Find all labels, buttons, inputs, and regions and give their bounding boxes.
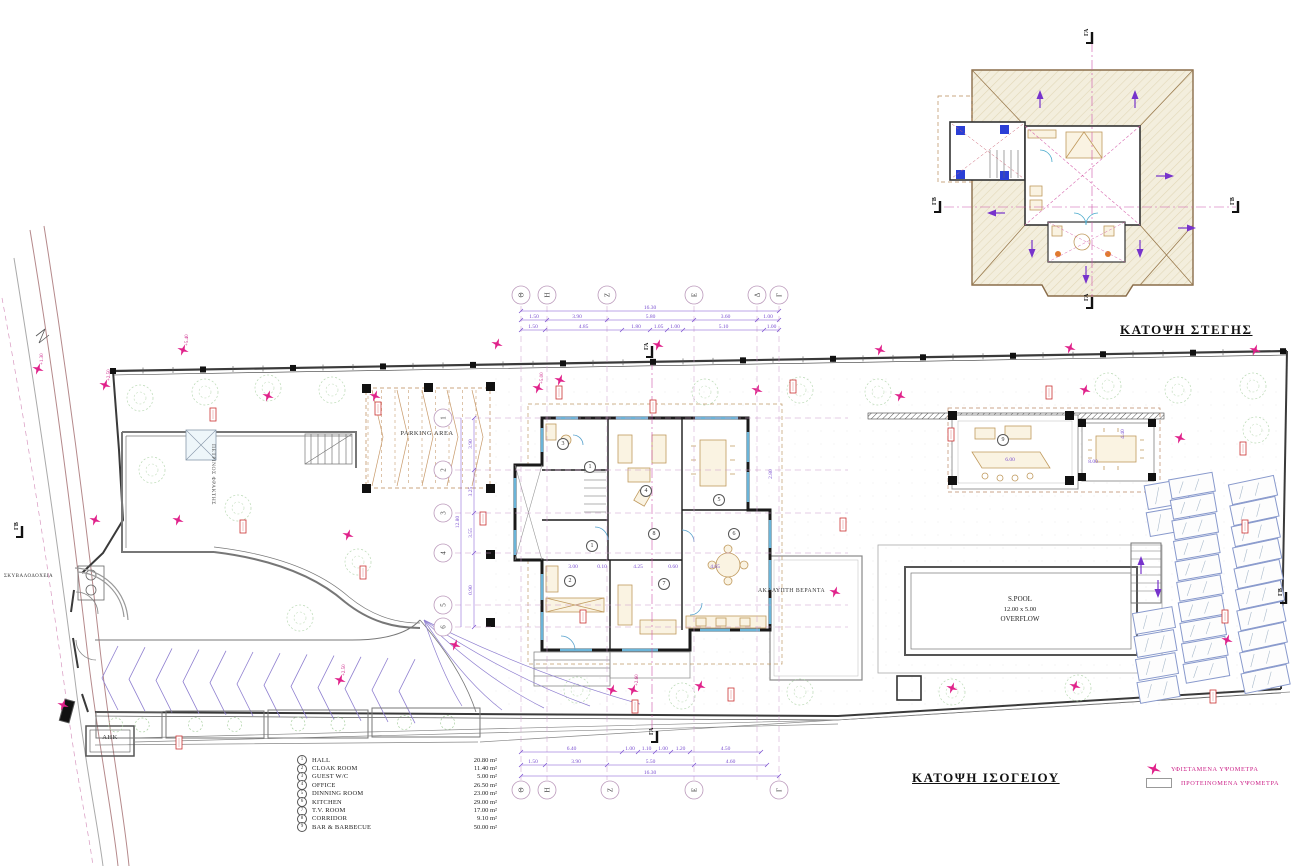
svg-text:6: 6 bbox=[440, 625, 448, 629]
drawing-canvas: +2.50+5.40+5.00+1.30+2.50+2.60ΘΗΖΕΔΓΘΗΖΕ… bbox=[0, 0, 1300, 866]
parking-area bbox=[366, 388, 490, 488]
svg-text:1.80: 1.80 bbox=[631, 324, 641, 330]
svg-text:+2.50: +2.50 bbox=[342, 664, 347, 676]
svg-text:4.60: 4.60 bbox=[726, 759, 736, 765]
room-name: HALL bbox=[312, 757, 449, 764]
garage-building bbox=[122, 430, 420, 628]
svg-text:12.80: 12.80 bbox=[455, 516, 461, 529]
svg-text:6.00: 6.00 bbox=[1005, 457, 1015, 463]
svg-text:Η: Η bbox=[544, 787, 552, 792]
room-name: OFFICE bbox=[312, 782, 449, 789]
svg-text:Ζ: Ζ bbox=[607, 788, 615, 792]
svg-text:1.00: 1.00 bbox=[625, 746, 635, 752]
room-name: GUEST W/C bbox=[312, 773, 449, 780]
svg-text:Ζ: Ζ bbox=[604, 293, 612, 297]
svg-text:3.90: 3.90 bbox=[468, 439, 474, 449]
road-left bbox=[2, 226, 129, 866]
svg-text:0.60: 0.60 bbox=[668, 564, 678, 570]
svg-text:+5.40: +5.40 bbox=[185, 334, 190, 346]
legend-proposed-label: ΠΡΟΤΕΙΝΟΜΕΝΑ ΥΨΟΜΕΤΡΑ bbox=[1181, 780, 1279, 787]
svg-text:8.00: 8.00 bbox=[1088, 459, 1098, 465]
ahk-label: ΑΗΚ bbox=[88, 734, 132, 741]
room-number-badge: 9 bbox=[297, 822, 307, 832]
room-name: KITCHEN bbox=[312, 799, 449, 806]
svg-text:4.50: 4.50 bbox=[721, 746, 731, 752]
svg-text:Γ: Γ bbox=[776, 293, 784, 297]
svg-text:Θ: Θ bbox=[518, 292, 526, 297]
roof-plan-title: ΚΑΤΟΨΗ ΣΤΕΓΗΣ bbox=[1120, 322, 1253, 338]
room-name: BAR & BARBECUE bbox=[312, 824, 449, 831]
schedule-row: 8CORRIDOR9.10 m² bbox=[297, 815, 497, 823]
svg-text:+1.30: +1.30 bbox=[40, 353, 45, 365]
svg-text:1.50: 1.50 bbox=[528, 324, 538, 330]
room-area: 17.00 m² bbox=[449, 807, 497, 814]
svg-text:2: 2 bbox=[440, 468, 448, 472]
driveway-edges bbox=[95, 620, 476, 712]
svg-text:ΓΑ: ΓΑ bbox=[1084, 28, 1090, 36]
svg-text:4.85: 4.85 bbox=[579, 324, 589, 330]
room-number-badge: 2 bbox=[564, 575, 576, 587]
gate-post bbox=[59, 699, 74, 723]
svg-text:16.30: 16.30 bbox=[644, 305, 657, 311]
svg-text:1.00: 1.00 bbox=[763, 314, 773, 320]
ground-plan-title: ΚΑΤΟΨΗ ΙΣΟΓΕΙΟΥ bbox=[912, 770, 1060, 786]
svg-text:Γ: Γ bbox=[776, 788, 784, 792]
svg-text:1: 1 bbox=[440, 416, 448, 420]
svg-text:+5.00: +5.00 bbox=[540, 372, 545, 384]
room-name: CORRIDOR bbox=[312, 815, 449, 822]
room-schedule-legend: 1HALL20.80 m²2CLOAK ROOM11.40 m²3GUEST W… bbox=[297, 756, 497, 832]
room-number-badge: 4 bbox=[640, 485, 652, 497]
svg-text:3.25: 3.25 bbox=[468, 486, 474, 496]
garden-stair bbox=[305, 434, 352, 464]
section-marker: ΓΒ bbox=[14, 522, 23, 538]
room-number-badge: 1 bbox=[584, 461, 596, 473]
svg-text:3: 3 bbox=[440, 511, 448, 515]
svg-text:Ε: Ε bbox=[691, 788, 699, 792]
svg-text:16.30: 16.30 bbox=[644, 770, 657, 776]
svg-text:1.50: 1.50 bbox=[529, 314, 539, 320]
svg-text:2.80: 2.80 bbox=[768, 469, 774, 479]
schedule-row: 3GUEST W/C5.00 m² bbox=[297, 773, 497, 781]
elevation-star-icon bbox=[1146, 762, 1162, 776]
svg-text:3.60: 3.60 bbox=[721, 314, 731, 320]
room-area: 20.80 m² bbox=[449, 757, 497, 764]
room-area: 5.00 m² bbox=[449, 773, 497, 780]
legend-proposed-row: ΠΡΟΤΕΙΝΟΜΕΝΑ ΥΨΟΜΕΤΡΑ bbox=[1146, 776, 1279, 790]
section-marker: ΓΑ bbox=[1084, 28, 1093, 44]
svg-text:4: 4 bbox=[440, 551, 448, 555]
svg-text:+2.60: +2.60 bbox=[635, 674, 640, 686]
room-number-badge: 5 bbox=[713, 494, 725, 506]
room-number-badge: 9 bbox=[997, 434, 1009, 446]
svg-text:Η: Η bbox=[544, 292, 552, 297]
roof-plan bbox=[938, 42, 1236, 300]
room-number-badge: 3 bbox=[557, 438, 569, 450]
svg-text:1.05: 1.05 bbox=[654, 324, 664, 330]
svg-text:ΓΑ: ΓΑ bbox=[649, 727, 655, 735]
svg-text:1.00: 1.00 bbox=[658, 746, 668, 752]
room-area: 50.00 m² bbox=[449, 824, 497, 831]
schedule-row: 9BAR & BARBECUE50.00 m² bbox=[297, 823, 497, 831]
stone-fence-label: ΠΕΤΡΙΝΟΣ ΦΡΑΚΤΗΣ bbox=[210, 444, 216, 505]
svg-text:3.55: 3.55 bbox=[468, 528, 474, 538]
svg-text:5.50: 5.50 bbox=[646, 759, 656, 765]
pool-type: OVERFLOW bbox=[950, 614, 1090, 625]
svg-text:4.25: 4.25 bbox=[633, 564, 643, 570]
svg-text:1.50: 1.50 bbox=[528, 759, 538, 765]
svg-text:5: 5 bbox=[440, 603, 448, 607]
pool-size: 12.00 x 5.00 bbox=[950, 605, 1090, 615]
svg-text:ΓΑ: ΓΑ bbox=[1084, 293, 1090, 301]
svg-text:1.20: 1.20 bbox=[676, 746, 686, 752]
legend-existing-row: ΥΦΙΣΤΑΜΕΝΑ ΥΨΟΜΕΤΡΑ bbox=[1146, 762, 1279, 776]
svg-text:Ε: Ε bbox=[691, 293, 699, 297]
svg-text:5.10: 5.10 bbox=[719, 324, 729, 330]
svg-text:5.80: 5.80 bbox=[646, 314, 656, 320]
room-area: 11.40 m² bbox=[449, 765, 497, 772]
legend-existing-label: ΥΦΙΣΤΑΜΕΝΑ ΥΨΟΜΕΤΡΑ bbox=[1171, 766, 1259, 773]
svg-text:1.00: 1.00 bbox=[767, 324, 777, 330]
svg-text:1.00: 1.00 bbox=[670, 324, 680, 330]
svg-text:ΓΑ: ΓΑ bbox=[644, 342, 650, 350]
site-plan-drawing: +2.50+5.40+5.00+1.30+2.50+2.60ΘΗΖΕΔΓΘΗΖΕ… bbox=[0, 0, 1300, 866]
svg-text:Θ: Θ bbox=[518, 787, 526, 792]
room-name: T.V. ROOM bbox=[312, 807, 449, 814]
svg-text:0.90: 0.90 bbox=[468, 585, 474, 595]
schedule-row: 2CLOAK ROOM11.40 m² bbox=[297, 764, 497, 772]
room-number-badge: 1 bbox=[586, 540, 598, 552]
veranda-label: ΑΚΑΛΥΠΤΗ ΒΕΡΑΝΤΑ bbox=[758, 588, 825, 594]
schedule-row: 4OFFICE26.50 m² bbox=[297, 781, 497, 789]
svg-text:0.10: 0.10 bbox=[597, 564, 607, 570]
room-number-badge: 7 bbox=[658, 578, 670, 590]
room-name: DINNING ROOM bbox=[312, 790, 449, 797]
bins-label: ΣΚΥΒΑΛΟΔΟΧΕΙΑ bbox=[4, 574, 53, 579]
pool-label: S.POOL 12.00 x 5.00 OVERFLOW bbox=[950, 594, 1090, 625]
room-area: 26.50 m² bbox=[449, 782, 497, 789]
room-number-badge: 8 bbox=[648, 528, 660, 540]
svg-text:Δ: Δ bbox=[754, 292, 762, 297]
svg-text:6.40: 6.40 bbox=[567, 746, 577, 752]
svg-text:ΓΒ: ΓΒ bbox=[1230, 197, 1236, 205]
room-name: CLOAK ROOM bbox=[312, 765, 449, 772]
pool-name: S.POOL bbox=[950, 594, 1090, 605]
svg-text:ΓΒ: ΓΒ bbox=[1278, 588, 1284, 596]
section-marker: ΓΑ bbox=[649, 727, 658, 743]
svg-text:+2.50: +2.50 bbox=[107, 369, 112, 381]
schedule-row: 1HALL20.80 m² bbox=[297, 756, 497, 764]
room-area: 9.10 m² bbox=[449, 815, 497, 822]
proposed-elevation-box-icon bbox=[1146, 778, 1172, 788]
svg-text:ΓΒ: ΓΒ bbox=[932, 197, 938, 205]
service-line bbox=[134, 720, 838, 742]
svg-text:ΓΒ: ΓΒ bbox=[14, 522, 20, 530]
svg-text:3.00: 3.00 bbox=[568, 564, 578, 570]
section-marker: ΓΒ bbox=[932, 197, 941, 213]
svg-text:4.40: 4.40 bbox=[1120, 429, 1126, 439]
parking-area-label: PARKING AREA bbox=[363, 430, 491, 437]
parking-hatch bbox=[362, 382, 495, 627]
elevation-legend: ΥΦΙΣΤΑΜΕΝΑ ΥΨΟΜΕΤΡΑ ΠΡΟΤΕΙΝΟΜΕΝΑ ΥΨΟΜΕΤΡ… bbox=[1146, 762, 1279, 790]
svg-text:4.65: 4.65 bbox=[710, 564, 720, 570]
svg-text:3.90: 3.90 bbox=[571, 759, 581, 765]
schedule-row: 7T.V. ROOM17.00 m² bbox=[297, 806, 497, 814]
svg-text:3.90: 3.90 bbox=[572, 314, 582, 320]
schedule-row: 5DINNING ROOM23.00 m² bbox=[297, 790, 497, 798]
schedule-row: 6KITCHEN29.00 m² bbox=[297, 798, 497, 806]
room-number-badge: 6 bbox=[728, 528, 740, 540]
section-marker: ΓΒ bbox=[1230, 197, 1239, 213]
room-area: 23.00 m² bbox=[449, 790, 497, 797]
svg-text:1.10: 1.10 bbox=[642, 746, 652, 752]
section-marker: ΓΑ bbox=[644, 342, 653, 358]
room-area: 29.00 m² bbox=[449, 799, 497, 806]
